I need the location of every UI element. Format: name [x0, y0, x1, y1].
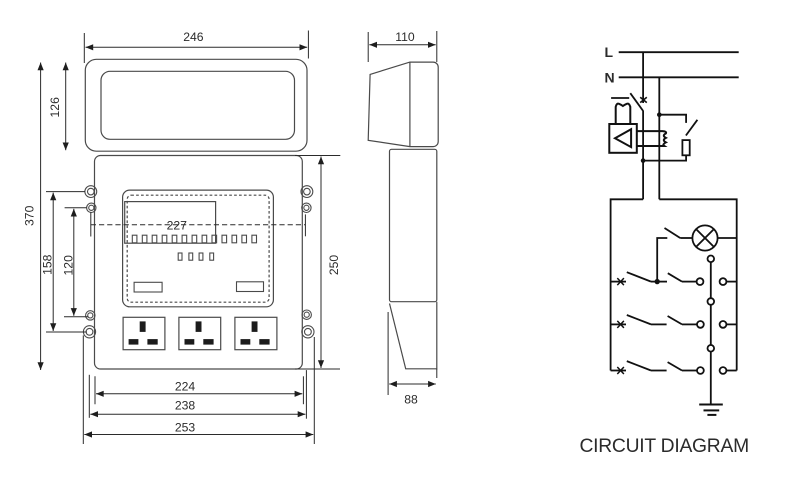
svg-text:88: 88 [404, 393, 418, 407]
svg-text:253: 253 [175, 421, 196, 435]
svg-text:126: 126 [48, 97, 62, 118]
svg-text:238: 238 [175, 399, 196, 413]
svg-text:120: 120 [62, 255, 76, 276]
svg-text:224: 224 [175, 380, 196, 394]
svg-text:158: 158 [41, 254, 55, 275]
svg-text:CIRCUIT DIAGRAM: CIRCUIT DIAGRAM [579, 436, 748, 457]
svg-text:110: 110 [395, 30, 415, 44]
svg-text:246: 246 [183, 30, 204, 44]
svg-text:L: L [605, 44, 614, 60]
svg-text:227: 227 [167, 218, 188, 232]
svg-text:N: N [605, 70, 615, 86]
svg-text:250: 250 [327, 255, 341, 276]
svg-text:370: 370 [23, 205, 37, 226]
